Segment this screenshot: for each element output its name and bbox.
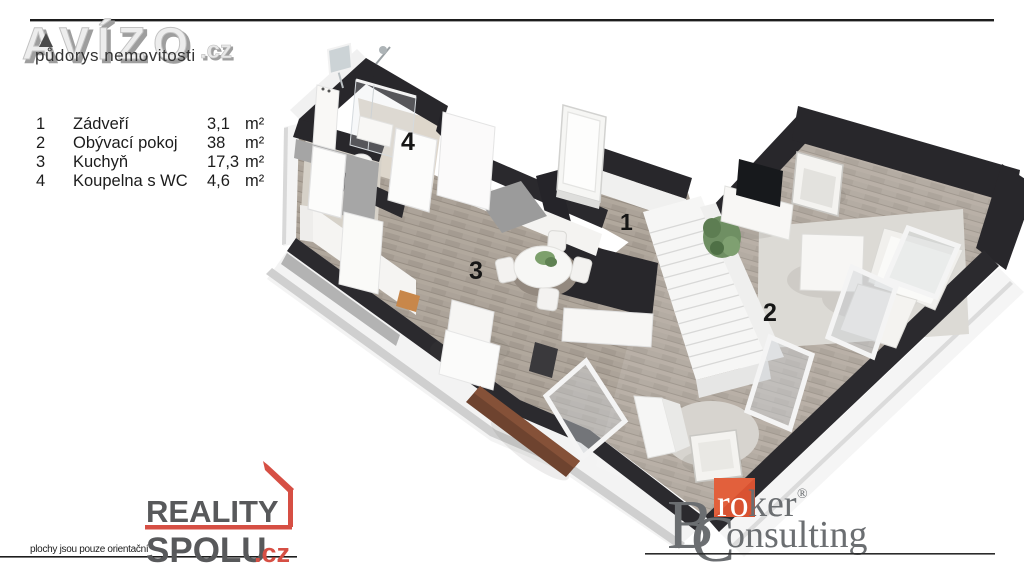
svg-text:4,6: 4,6 — [207, 172, 230, 190]
svg-text:.cz: .cz — [254, 538, 290, 568]
svg-text:m²: m² — [245, 172, 265, 190]
svg-text:Kuchyň: Kuchyň — [73, 153, 128, 171]
svg-text:onsulting: onsulting — [726, 514, 867, 556]
svg-text:1: 1 — [620, 209, 633, 235]
svg-text:m²: m² — [245, 115, 265, 133]
svg-text:m²: m² — [245, 134, 265, 152]
svg-text:2: 2 — [763, 299, 777, 327]
svg-text:Obývací pokoj: Obývací pokoj — [73, 134, 178, 152]
svg-text:.cz: .cz — [200, 37, 232, 64]
svg-text:3: 3 — [469, 257, 483, 285]
svg-text:17,3: 17,3 — [207, 153, 239, 171]
svg-text:půdorys nemovitosti: půdorys nemovitosti — [35, 46, 196, 65]
svg-text:3,1: 3,1 — [207, 115, 230, 133]
svg-text:®: ® — [797, 487, 808, 502]
svg-text:plochy jsou pouze orientační: plochy jsou pouze orientační — [30, 544, 149, 555]
svg-text:Zádveří: Zádveří — [73, 115, 129, 133]
svg-text:4: 4 — [401, 128, 415, 156]
svg-text:m²: m² — [245, 153, 265, 171]
svg-text:3: 3 — [36, 153, 45, 171]
svg-text:2: 2 — [36, 134, 45, 152]
svg-text:SPOLU: SPOLU — [146, 531, 267, 570]
svg-text:REALITY: REALITY — [146, 494, 279, 529]
svg-text:1: 1 — [36, 115, 45, 133]
svg-text:4: 4 — [36, 172, 45, 190]
svg-text:Koupelna s WC: Koupelna s WC — [73, 172, 188, 190]
svg-text:38: 38 — [207, 134, 225, 152]
